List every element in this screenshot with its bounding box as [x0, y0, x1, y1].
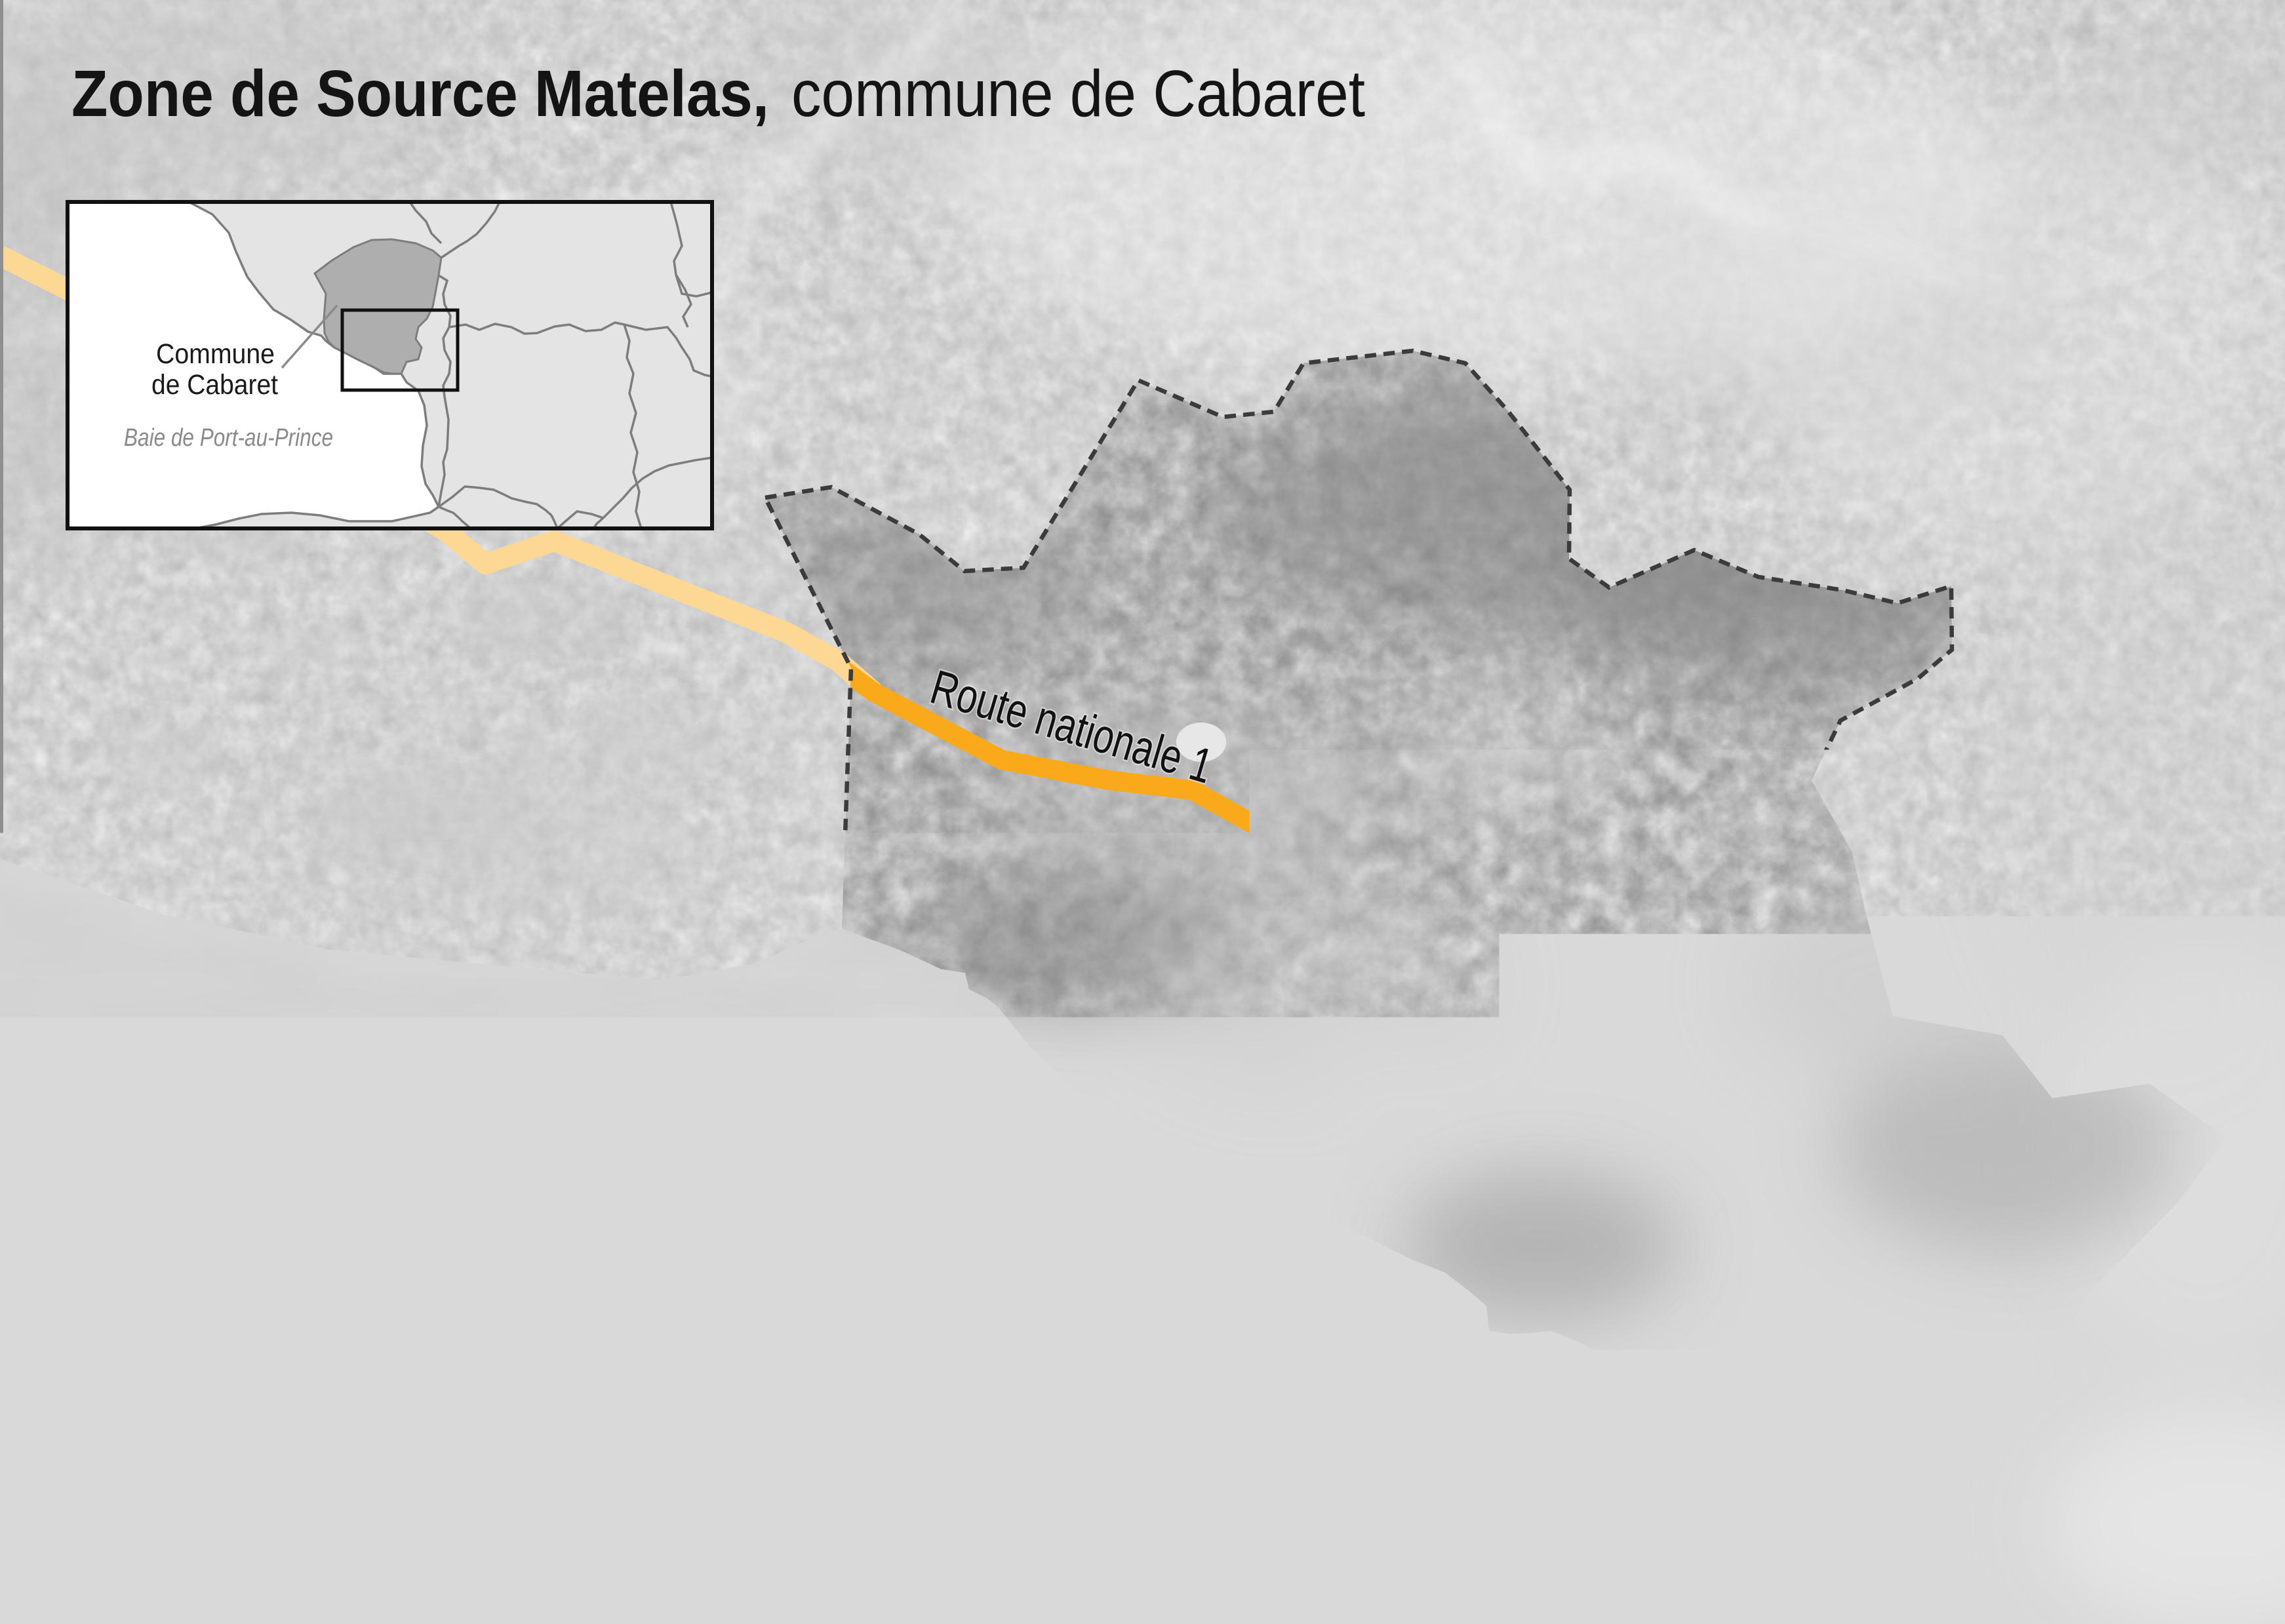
svg-text:La représentation et l'utilisa: La représentation et l'utilisation des f… — [31, 1567, 1972, 1594]
svg-text:Source Matelas: Source Matelas — [1358, 812, 1664, 862]
svg-text:Cette carte est fournie à titr: Cette carte est fournie à titre d'illust… — [31, 1541, 1905, 1568]
svg-text:1 km: 1 km — [2044, 1543, 2111, 1583]
svg-text:Baie de Port-au-Prince: Baie de Port-au-Prince — [124, 424, 333, 452]
svg-text:de Cabaret: de Cabaret — [151, 369, 278, 401]
svg-text:N: N — [2211, 1507, 2235, 1543]
svg-text:Commune: Commune — [156, 338, 275, 370]
svg-text:commune de Cabaret: commune de Cabaret — [791, 57, 1365, 130]
svg-text:Zone de Source Matelas,: Zone de Source Matelas, — [71, 57, 769, 130]
